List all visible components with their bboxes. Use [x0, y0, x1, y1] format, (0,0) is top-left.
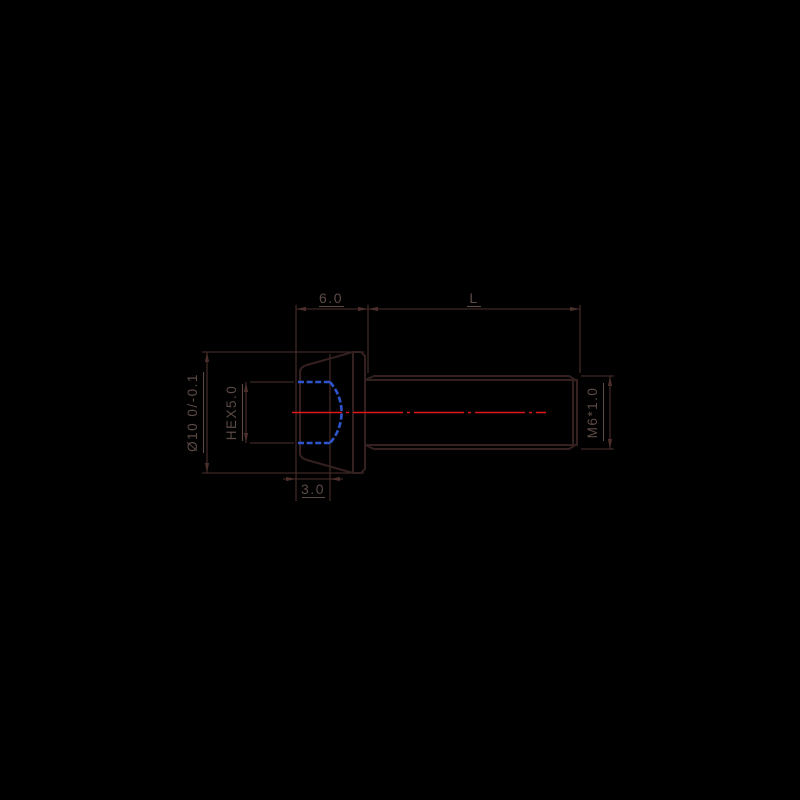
dimension-head-length: 6.0	[296, 290, 368, 311]
dim-label-thread-spec: M6*1.0	[585, 387, 600, 439]
dimension-thread-spec: M6*1.0	[585, 376, 612, 449]
dimension-hex-socket: HEX5.0	[224, 382, 248, 443]
dimension-shank-length: L	[368, 290, 580, 311]
dim-label-head-length: 6.0	[319, 290, 343, 306]
dimension-socket-depth: 3.0	[283, 477, 343, 498]
drawing-canvas: 6.0 L Ø10 0/-0.1 HEX5.0 M6*1.0	[0, 0, 800, 800]
extension-lines	[202, 305, 614, 501]
dim-label-hex-socket: HEX5.0	[224, 385, 239, 441]
dim-label-shank-length: L	[469, 290, 478, 306]
dim-label-head-diameter: Ø10 0/-0.1	[185, 373, 200, 452]
dim-label-socket-depth: 3.0	[301, 481, 325, 497]
technical-drawing: 6.0 L Ø10 0/-0.1 HEX5.0 M6*1.0	[0, 0, 800, 800]
dimension-head-diameter: Ø10 0/-0.1	[185, 352, 209, 473]
